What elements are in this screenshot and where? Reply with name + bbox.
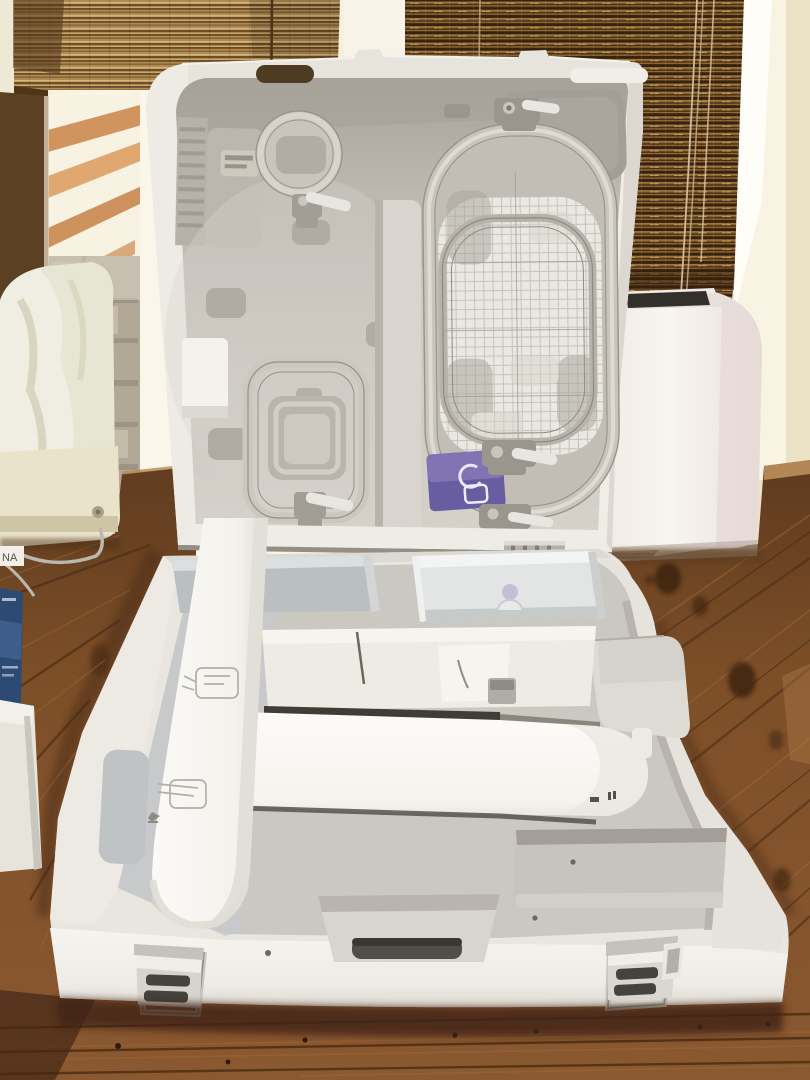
svg-text:NA: NA (2, 552, 18, 564)
